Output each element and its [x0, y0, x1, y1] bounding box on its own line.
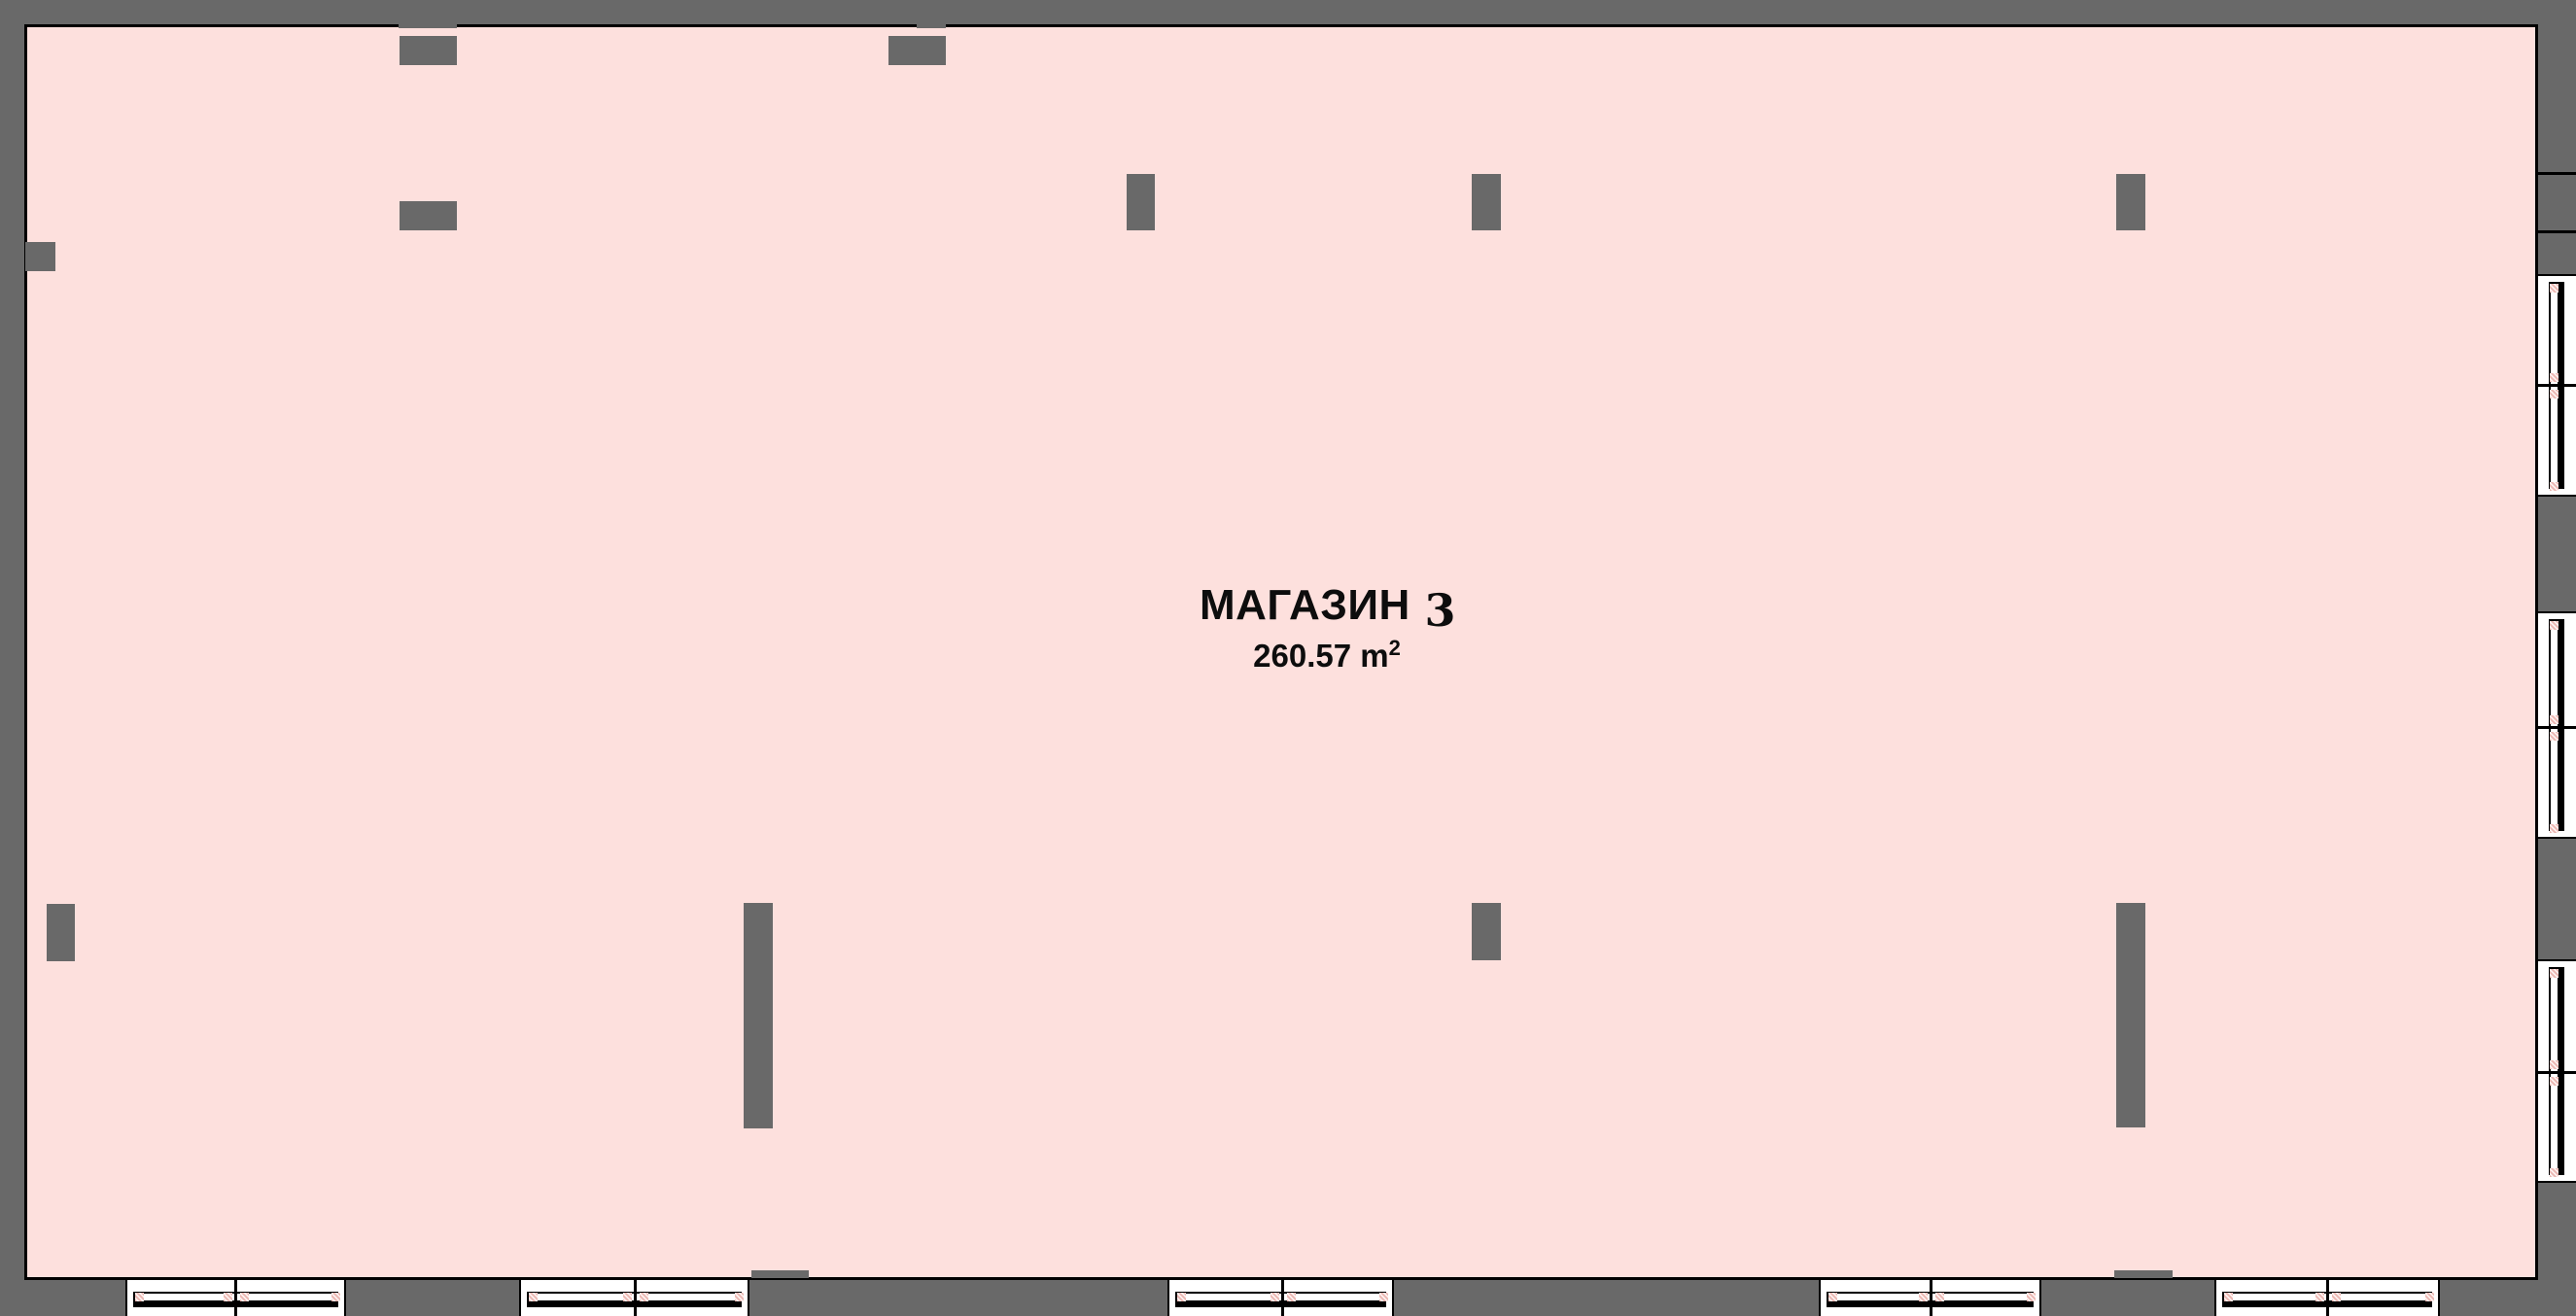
window-frame-bar	[2549, 619, 2559, 831]
window-right	[2538, 959, 2576, 1183]
wall-pier-patch	[2114, 1270, 2173, 1278]
window-hatch-mark	[2027, 1293, 2036, 1301]
window-hatch-mark	[2332, 1293, 2341, 1301]
room-label: МАГАЗИН 3 260.57 m2	[1108, 580, 1546, 674]
structural-column	[400, 36, 457, 65]
window-divider	[2538, 1071, 2576, 1074]
window-hatch-mark	[2550, 482, 2559, 491]
structural-column	[25, 242, 55, 271]
window-sill-line	[2559, 619, 2564, 831]
window-hatch-mark	[1919, 1293, 1928, 1301]
structural-column	[2116, 174, 2145, 230]
window-hatch-mark	[331, 1293, 340, 1301]
window-hatch-mark	[2550, 969, 2559, 978]
window-bottom	[2214, 1280, 2440, 1316]
window-hatch-mark	[2550, 824, 2559, 833]
window-hatch-mark	[2550, 715, 2559, 724]
window-hatch-mark	[2425, 1293, 2434, 1301]
structural-column	[744, 903, 773, 1128]
area-value-text: 260.57	[1253, 638, 1351, 674]
structural-column	[2116, 903, 2145, 1127]
window-hatch-mark	[2550, 390, 2559, 398]
wall-pier-patch	[399, 23, 457, 28]
window-divider	[1930, 1280, 1932, 1316]
window-bottom	[519, 1280, 749, 1316]
structural-column	[1472, 903, 1501, 960]
structural-column	[400, 201, 457, 230]
wall-segment-line	[2535, 172, 2576, 175]
window-hatch-mark	[224, 1293, 232, 1301]
window-hatch-mark	[2550, 373, 2559, 382]
area-exponent-text: 2	[1389, 636, 1401, 660]
window-hatch-mark	[240, 1293, 249, 1301]
window-hatch-mark	[623, 1293, 632, 1301]
window-hatch-mark	[640, 1293, 648, 1301]
window-hatch-mark	[1177, 1293, 1186, 1301]
window-divider	[234, 1280, 237, 1316]
window-hatch-mark	[1935, 1293, 1944, 1301]
window-hatch-mark	[135, 1293, 144, 1301]
structural-column	[1472, 174, 1501, 230]
window-hatch-mark	[2550, 1077, 2559, 1086]
window-hatch-mark	[2224, 1293, 2233, 1301]
window-hatch-mark	[2550, 284, 2559, 293]
window-hatch-mark	[529, 1293, 538, 1301]
wall-pier-patch	[917, 23, 946, 28]
wall-pier-patch	[751, 1270, 809, 1278]
room-number-text: 3	[1425, 584, 1457, 637]
window-bottom	[1819, 1280, 2041, 1316]
room-name-text: МАГАЗИН	[1200, 581, 1410, 629]
window-divider	[2326, 1280, 2329, 1316]
window-hatch-mark	[735, 1293, 744, 1301]
window-hatch-mark	[2315, 1293, 2324, 1301]
floor-plan-canvas: МАГАЗИН 3 260.57 m2	[0, 0, 2576, 1316]
room-area: 260.57 m2	[1108, 631, 1546, 674]
window-divider	[2538, 726, 2576, 729]
structural-column	[888, 36, 946, 65]
window-hatch-mark	[1271, 1293, 1279, 1301]
window-divider	[634, 1280, 637, 1316]
window-divider	[2538, 384, 2576, 387]
window-hatch-mark	[1287, 1293, 1296, 1301]
window-hatch-mark	[2550, 1168, 2559, 1177]
window-hatch-mark	[2550, 621, 2559, 630]
window-bottom	[1167, 1280, 1394, 1316]
window-right	[2538, 274, 2576, 497]
window-hatch-mark	[2550, 1060, 2559, 1069]
window-right	[2538, 611, 2576, 839]
area-unit-text: m	[1351, 638, 1389, 674]
window-hatch-mark	[1828, 1293, 1837, 1301]
wall-segment-line	[2535, 230, 2576, 233]
window-divider	[1281, 1280, 1284, 1316]
window-bottom	[125, 1280, 346, 1316]
structural-column	[47, 904, 75, 961]
room-title: МАГАЗИН 3	[1108, 580, 1546, 629]
structural-column	[1127, 174, 1155, 230]
window-hatch-mark	[1379, 1293, 1388, 1301]
window-hatch-mark	[2550, 732, 2559, 741]
